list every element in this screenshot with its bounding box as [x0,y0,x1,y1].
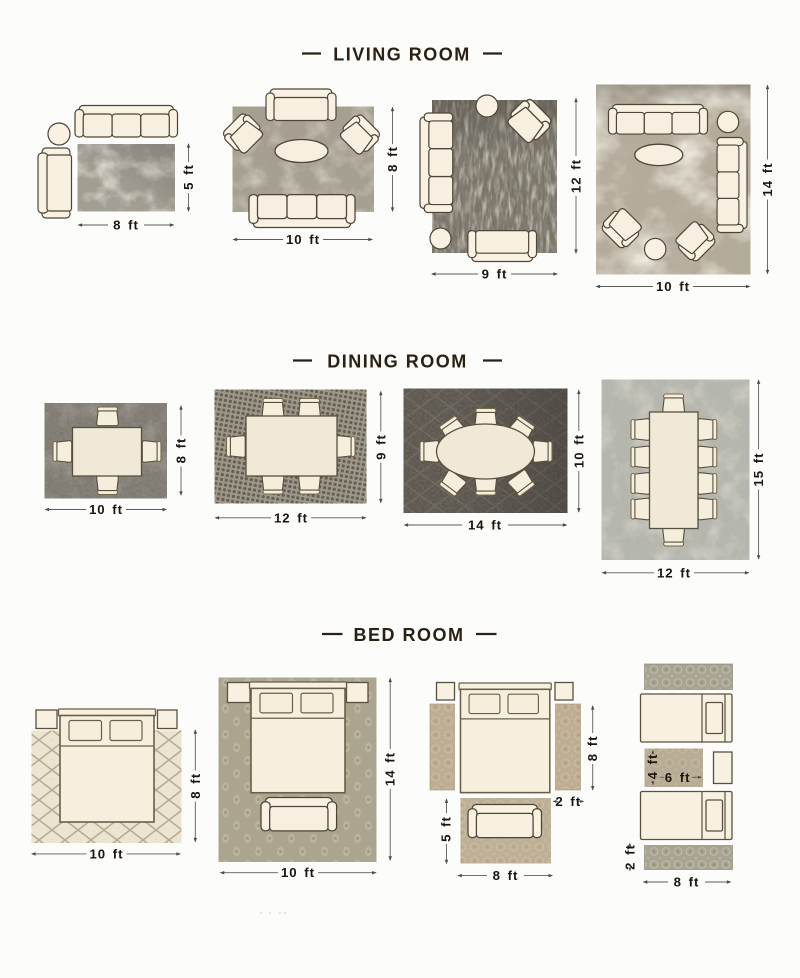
svg-text:8 ft: 8 ft [174,438,189,464]
svg-text:12 ft: 12 ft [274,510,308,525]
svg-text:LIVING ROOM: LIVING ROOM [333,45,471,65]
svg-text:10 ft: 10 ft [89,502,123,517]
svg-text:14 ft: 14 ft [760,162,775,196]
svg-text:14 ft: 14 ft [468,518,502,533]
svg-text:12 ft: 12 ft [569,159,584,193]
svg-text:2 ft: 2 ft [555,794,581,809]
svg-text:8 ft: 8 ft [188,773,203,799]
svg-text:10 ft: 10 ft [281,865,315,880]
svg-text:6 ft: 6 ft [665,770,691,785]
svg-text:2 ft: 2 ft [622,844,637,870]
svg-text:DINING ROOM: DINING ROOM [327,352,468,372]
svg-text:4 ft: 4 ft [645,754,660,780]
svg-text:15 ft: 15 ft [751,452,766,486]
svg-text:8 ft: 8 ft [585,736,600,762]
svg-text:8 ft: 8 ft [113,218,139,233]
svg-text:10 ft: 10 ft [89,846,123,861]
svg-text:5 ft: 5 ft [181,164,196,190]
svg-text:10 ft: 10 ft [656,279,690,294]
svg-text:8 ft: 8 ft [674,875,700,890]
svg-text:BED ROOM: BED ROOM [354,625,465,645]
svg-text:14 ft: 14 ft [383,752,398,786]
svg-text:12 ft: 12 ft [657,565,691,580]
svg-text:5 ft: 5 ft [439,816,454,842]
svg-text:10 ft: 10 ft [286,232,320,247]
svg-text:9 ft: 9 ft [482,267,508,282]
svg-text:9 ft: 9 ft [373,434,388,460]
svg-text:8 ft: 8 ft [385,146,400,172]
svg-text:8 ft: 8 ft [493,868,519,883]
svg-text:10 ft: 10 ft [571,434,586,468]
